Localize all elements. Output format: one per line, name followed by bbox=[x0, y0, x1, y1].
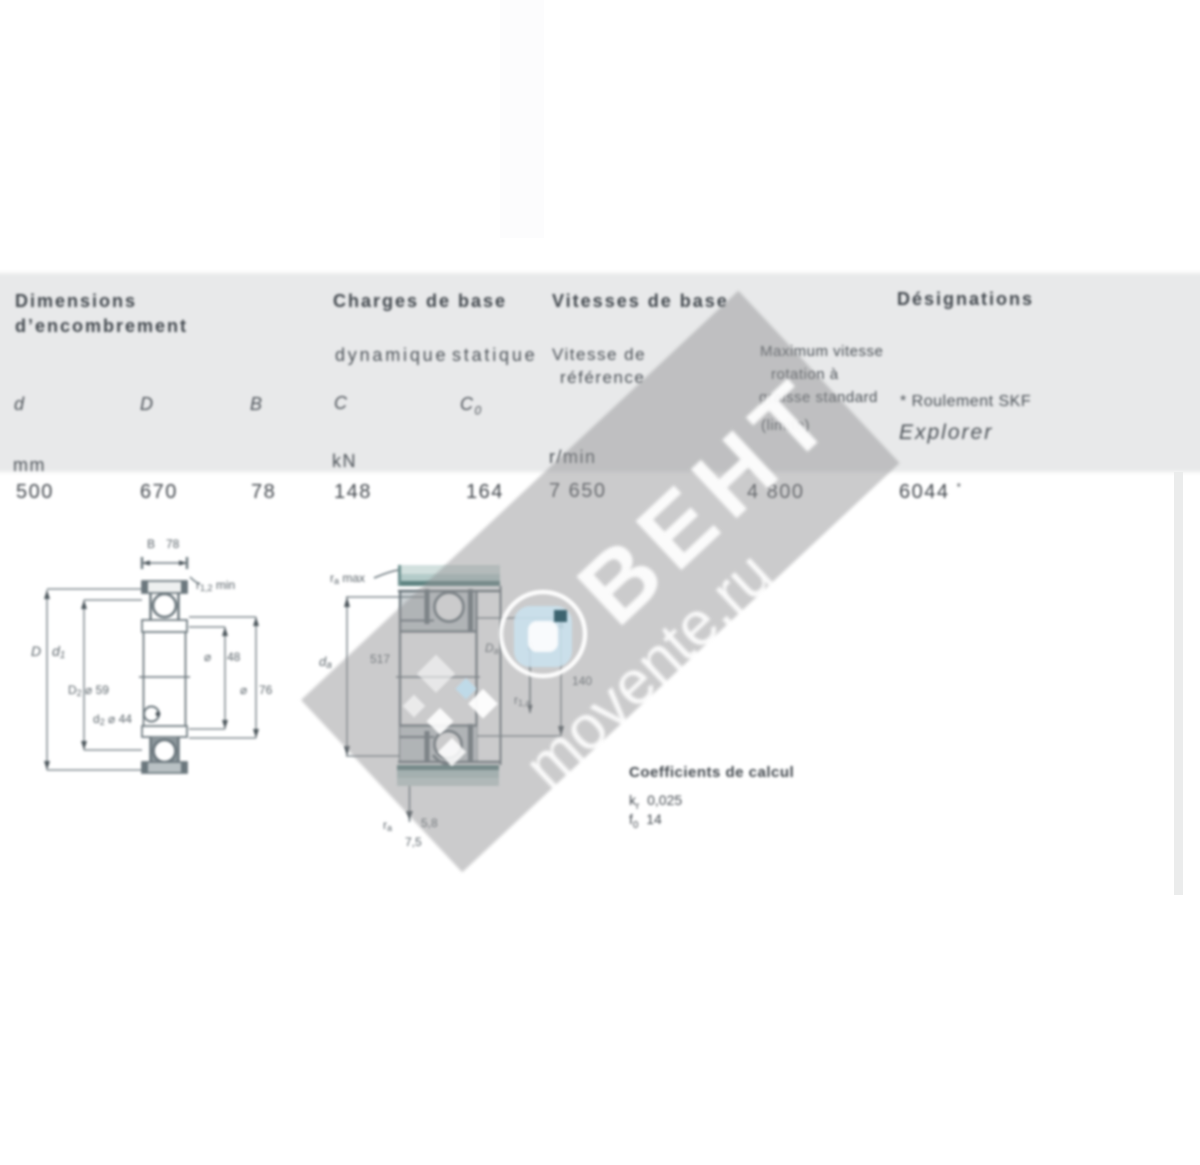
svg-text:da: da bbox=[319, 654, 332, 671]
svg-text:⌀: ⌀ bbox=[240, 683, 247, 697]
svg-text:D2 ⌀ 59: D2 ⌀ 59 bbox=[68, 683, 109, 698]
svg-text:7,5: 7,5 bbox=[405, 835, 422, 849]
svg-text:76: 76 bbox=[259, 683, 273, 697]
svg-text:d2 ⌀ 44: d2 ⌀ 44 bbox=[93, 712, 132, 727]
svg-text:r1,2 min: r1,2 min bbox=[196, 578, 235, 593]
svg-text:ra: ra bbox=[383, 818, 392, 833]
svg-text:B: B bbox=[147, 537, 155, 551]
svg-text:48: 48 bbox=[227, 650, 241, 664]
svg-text:d1: d1 bbox=[52, 643, 65, 661]
svg-text:D: D bbox=[31, 643, 41, 659]
svg-text:78: 78 bbox=[166, 537, 180, 551]
svg-text:ra max: ra max bbox=[330, 571, 365, 586]
svg-text:⌀: ⌀ bbox=[204, 650, 211, 664]
